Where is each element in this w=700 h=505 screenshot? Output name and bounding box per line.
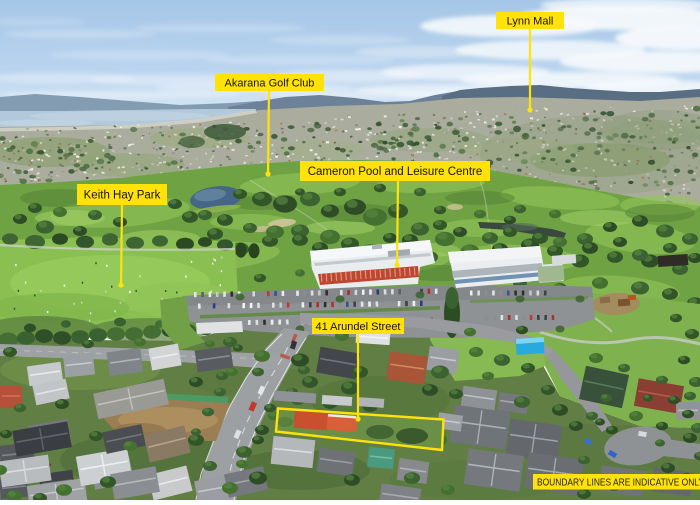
svg-text:Cameron Pool and Leisure Centr: Cameron Pool and Leisure Centre [308,166,483,178]
svg-text:Keith Hay Park: Keith Hay Park [84,190,161,202]
svg-text:Lynn Mall: Lynn Mall [507,15,554,27]
svg-text:Akarana Golf Club: Akarana Golf Club [225,77,315,89]
svg-text:BOUNDARY LINES ARE INDICATIVE: BOUNDARY LINES ARE INDICATIVE ONLY [537,477,700,489]
svg-text:41 Arundel Street: 41 Arundel Street [315,321,400,333]
